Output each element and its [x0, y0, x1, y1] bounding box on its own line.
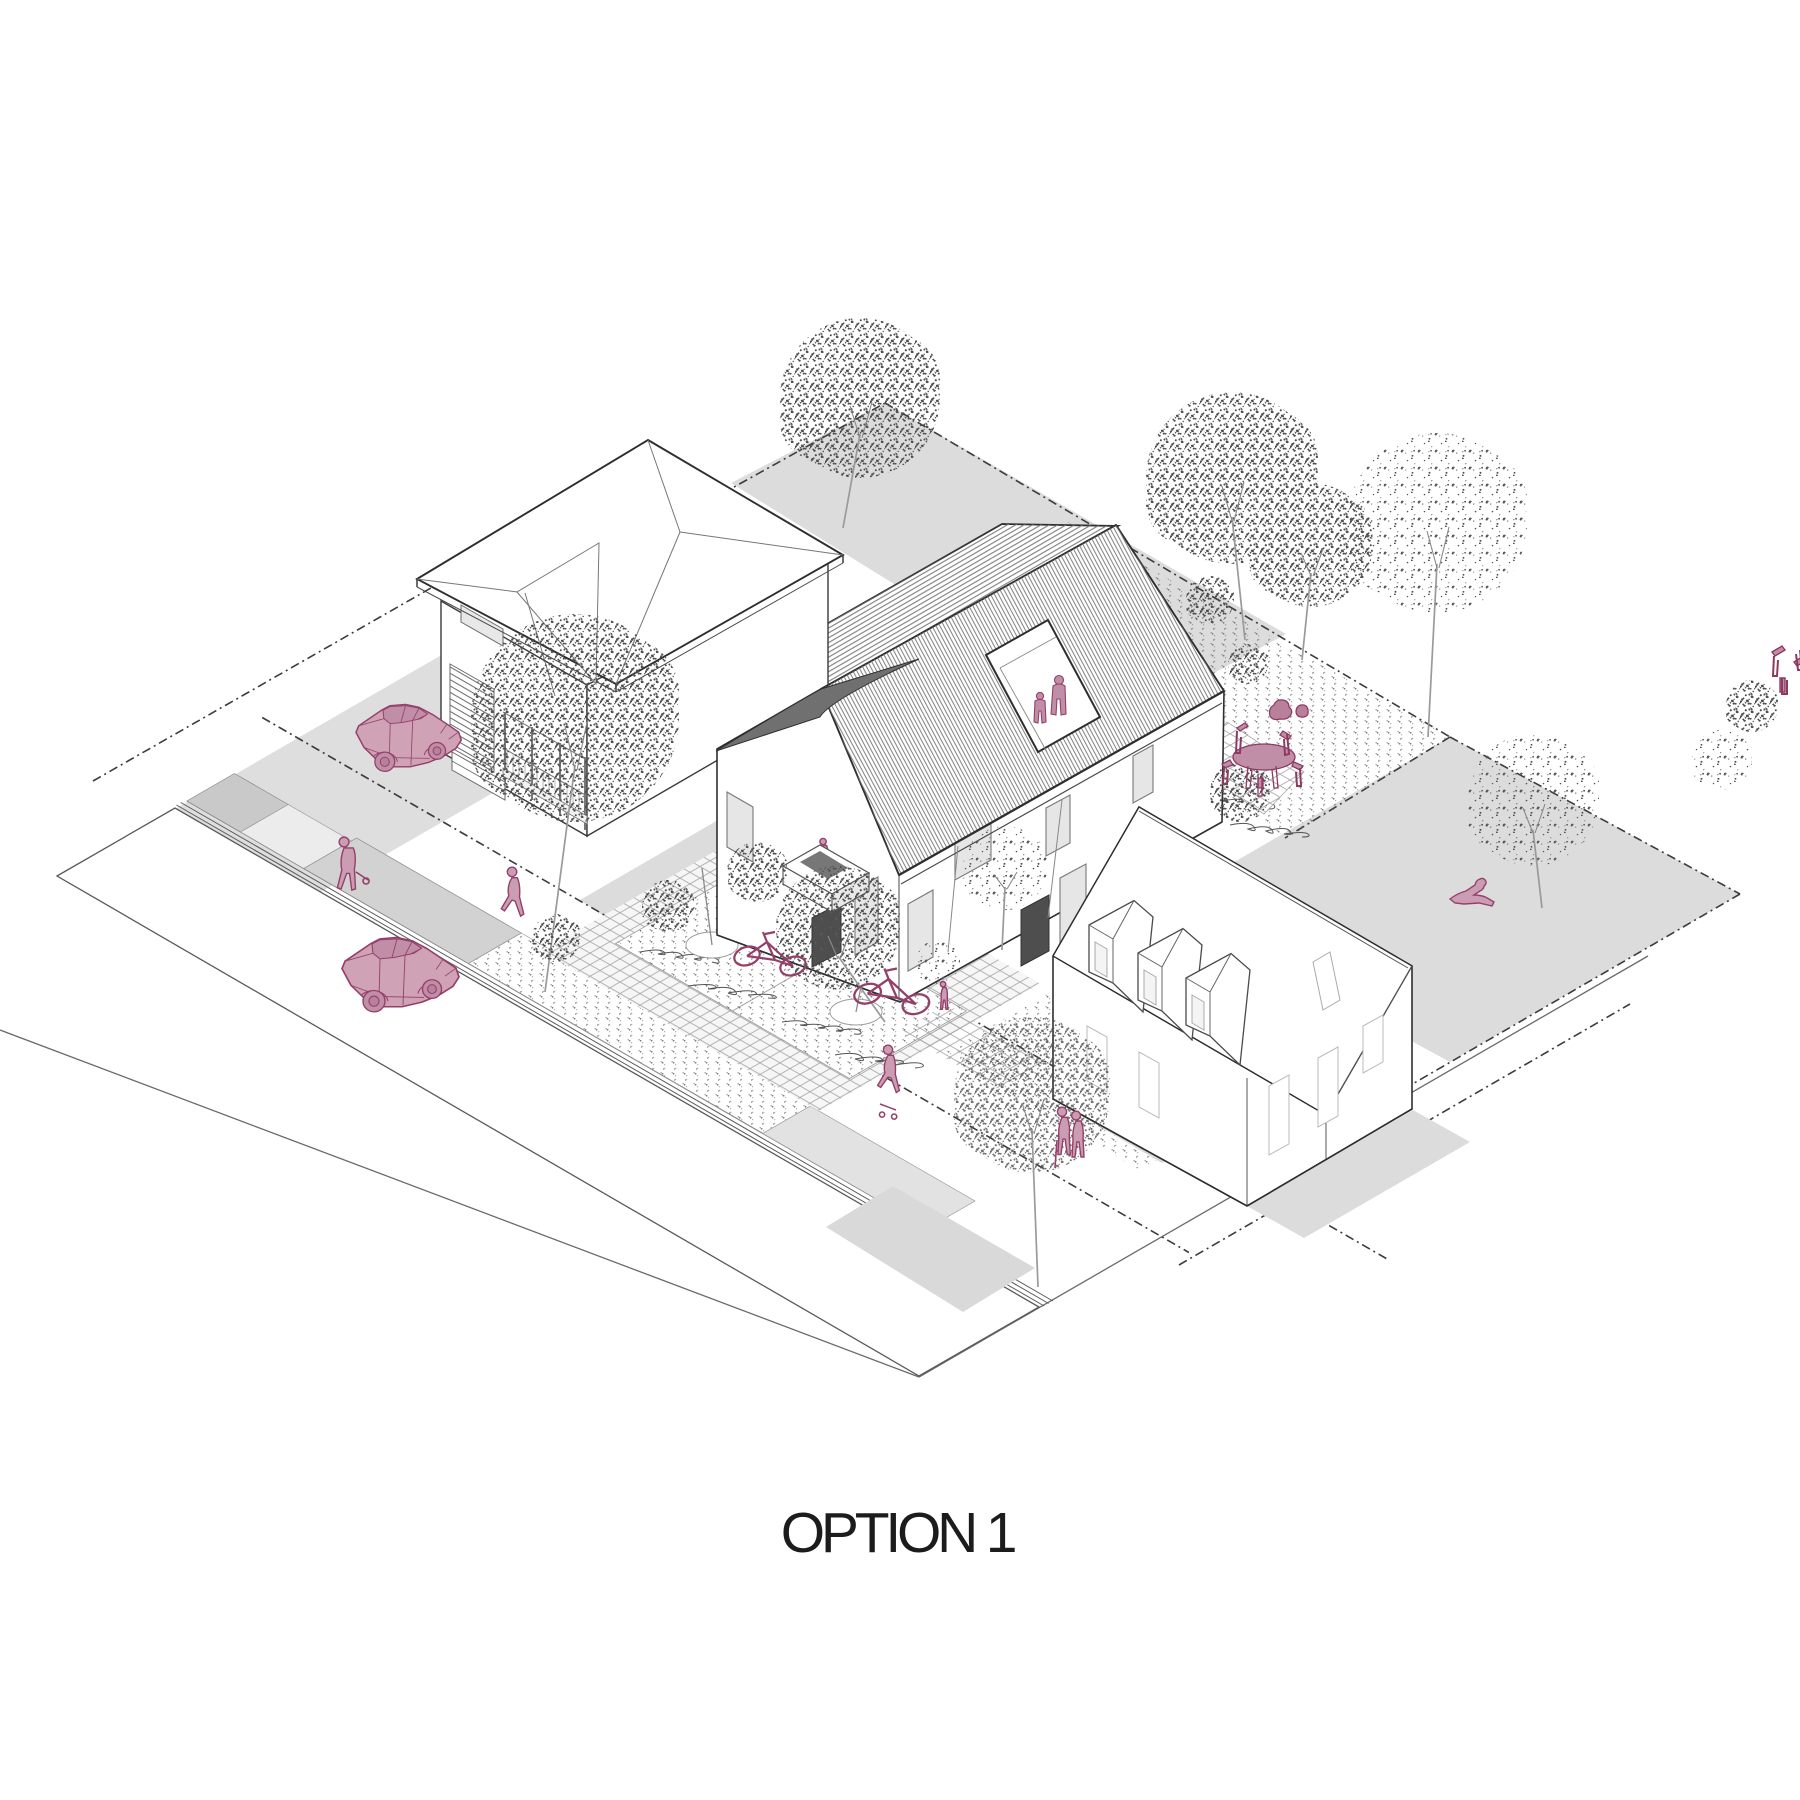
svg-text:OPTION 1: OPTION 1	[781, 1501, 1015, 1565]
